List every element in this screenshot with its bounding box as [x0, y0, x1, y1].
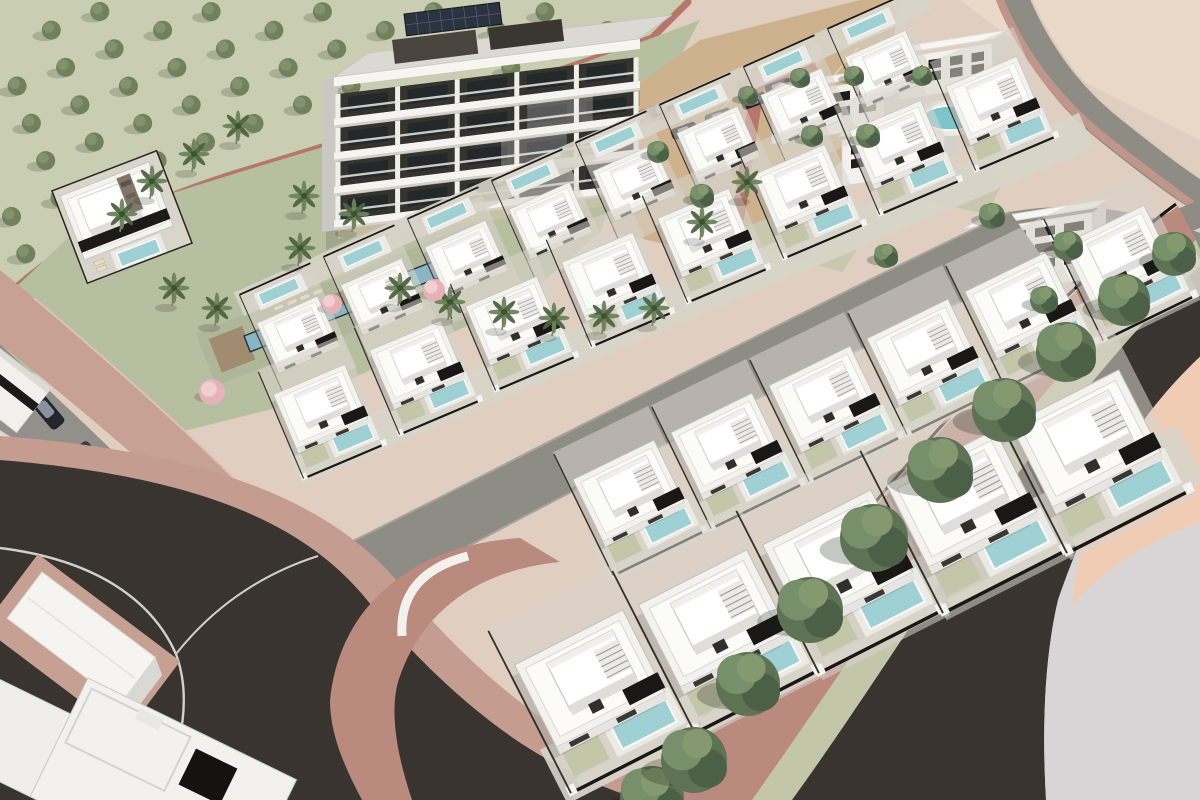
palm-crown [601, 313, 607, 319]
palm-shadow [198, 324, 220, 332]
palm-shadow [431, 318, 453, 326]
tree-crown-light [537, 4, 548, 15]
tree-crown-light [987, 204, 999, 216]
facade-pier [514, 72, 519, 97]
palm-crown [235, 123, 241, 129]
flower-crown-light [323, 295, 335, 307]
facade-pier [514, 106, 519, 131]
palm-crown [397, 285, 403, 291]
facade-pier [455, 113, 460, 138]
palm-shadow [585, 332, 607, 340]
palm-crown [119, 211, 125, 217]
facade-pier [395, 188, 400, 213]
palm-crown [447, 299, 453, 305]
tree-crown-light [797, 69, 806, 78]
facade-pier [336, 196, 341, 221]
tree-crown-light [155, 22, 166, 33]
palm-crown [191, 151, 197, 157]
tree-crown-light [217, 41, 228, 52]
tree-crown-light [882, 245, 893, 256]
palm-shadow [175, 170, 197, 178]
palm-shadow [103, 230, 125, 238]
tree-crown-light [9, 78, 20, 89]
facade-pier [336, 162, 341, 187]
palm-shadow [335, 230, 357, 238]
palm-shadow [133, 197, 155, 205]
tree-crown-light [698, 185, 709, 196]
tree-crown-light [169, 60, 180, 71]
palm-shadow [219, 142, 241, 150]
scene [0, 0, 1200, 800]
palm-shadow [728, 198, 750, 206]
tree-crown-light [745, 87, 754, 96]
palm-shadow [683, 238, 705, 246]
palm-shadow [485, 328, 507, 336]
tree-crown-light [43, 22, 54, 33]
tree-crown-light [120, 78, 131, 89]
tree-crown-light [993, 380, 1022, 409]
flower-crown-light [424, 280, 437, 293]
palm-crown [699, 219, 705, 225]
palm-shadow [155, 304, 177, 312]
tree-crown-light [295, 97, 306, 108]
facade-pier [395, 120, 400, 145]
palm-crown [171, 285, 177, 291]
tree-crown-light [928, 439, 958, 469]
tree-crown-light [280, 60, 291, 71]
tree-crown-light [266, 22, 277, 33]
tree-crown-light [808, 126, 818, 136]
render-viewport [0, 0, 1200, 800]
tree-crown-light [1063, 232, 1077, 246]
tree-crown-light [377, 22, 388, 33]
palm-crown [297, 245, 303, 251]
facade-pier [336, 94, 341, 119]
tree-crown-light [23, 115, 34, 126]
tree-crown-light [183, 97, 194, 108]
tree-crown-light [4, 209, 15, 220]
palm-shadow [535, 334, 557, 342]
facade-pier [336, 128, 341, 153]
facade-pier [634, 57, 639, 82]
tree-crown-light [654, 142, 664, 152]
tree-crown-light [682, 729, 712, 759]
palm-shadow [381, 304, 403, 312]
tree-crown-light [862, 506, 893, 537]
palm-crown [744, 179, 750, 185]
palm-shadow [635, 324, 657, 332]
flower-crown-light [201, 381, 217, 397]
facade-pier [455, 147, 460, 172]
tree-crown-light [106, 41, 117, 52]
facade-pier [455, 79, 460, 104]
palm-crown [501, 309, 507, 315]
tree-crown-light [919, 67, 928, 76]
tree-crown-light [798, 579, 828, 609]
tree-crown-light [38, 153, 49, 164]
tree-crown-light [72, 97, 83, 108]
tree-crown-light [1166, 233, 1186, 253]
tree-crown-light [58, 59, 69, 70]
tree-crown-light [232, 78, 243, 89]
facade-pier [395, 154, 400, 179]
tree-crown-light [329, 41, 340, 52]
palm-crown [301, 193, 307, 199]
palm-shadow [281, 264, 303, 272]
tree-crown-light [1115, 275, 1138, 298]
palm-shadow [285, 212, 307, 220]
palm-crown [651, 305, 657, 311]
tree-crown-light [203, 4, 214, 15]
tree-crown-light [135, 115, 146, 126]
palm-crown [351, 211, 357, 217]
tree-crown-light [851, 67, 860, 76]
tree-crown-light [314, 4, 325, 15]
facade-pier [634, 91, 639, 116]
palm-crown [551, 315, 557, 321]
tree-crown-light [86, 134, 97, 145]
facade-pier [574, 64, 579, 89]
tree-crown-light [737, 654, 766, 683]
tree-crown-light [1056, 324, 1083, 351]
palm-crown [214, 305, 220, 311]
palm-crown [149, 178, 155, 184]
tree-crown-light [864, 125, 875, 136]
tree-crown-light [18, 246, 29, 257]
facade-pier [395, 86, 400, 111]
tree-crown-light [92, 4, 103, 15]
tree-crown-light [1039, 287, 1052, 300]
